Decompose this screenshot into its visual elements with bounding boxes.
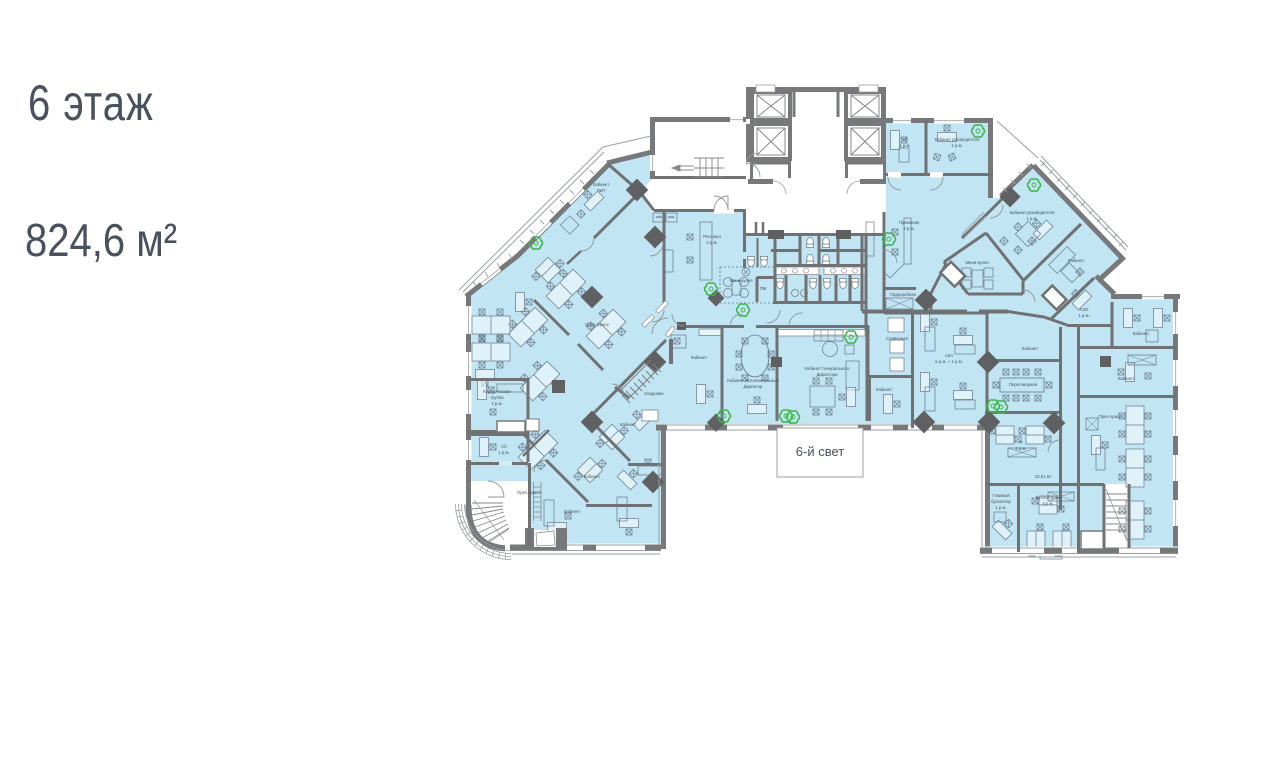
svg-text:2 р.м.: 2 р.м. [903, 226, 914, 231]
svg-text:Кабинет: Кабинет [1068, 258, 1084, 263]
svg-text:22.61 м²: 22.61 м² [1035, 474, 1052, 479]
svg-text:1 р.м.: 1 р.м. [498, 450, 509, 455]
svg-text:1 р.м.: 1 р.м. [1026, 216, 1037, 221]
svg-text:Серверная: Серверная [886, 336, 909, 341]
svg-text:Open space: Open space [1098, 414, 1122, 419]
svg-text:Главный: Главный [992, 493, 1010, 498]
svg-text:1 р.м.: 1 р.м. [1078, 313, 1089, 318]
svg-text:2 р.м.: 2 р.м. [706, 240, 717, 245]
svg-text:Кабинет: Кабинет [620, 422, 636, 427]
svg-text:Кабинет Исполнительный: Кабинет Исполнительный [727, 378, 779, 383]
svg-text:Кабинет: Кабинет [1022, 346, 1038, 351]
svg-text:1 р.м.: 1 р.м. [951, 143, 962, 148]
svg-text:Кабинет: Кабинет [593, 182, 609, 187]
svg-text:Бухгалтерия: Бухгалтерия [1036, 495, 1061, 500]
svg-text:шкф: шкф [668, 215, 675, 219]
svg-text:АЗО: АЗО [1080, 307, 1089, 312]
svg-text:бухгалтер: бухгалтер [991, 499, 1011, 504]
svg-text:6 р.м. + 1 р.м.: 6 р.м. + 1 р.м. [935, 359, 963, 364]
svg-text:Сб: Сб [902, 137, 908, 142]
svg-text:шкф: шкф [656, 215, 663, 219]
svg-text:Переговорная: Переговорная [1009, 382, 1038, 387]
svg-text:Директор: Директор [744, 384, 763, 389]
svg-text:4 р.м.: 4 р.м. [1015, 446, 1026, 451]
svg-text:1 р.м.: 1 р.м. [899, 143, 910, 148]
svg-text:Кабинет: Кабинет [691, 355, 707, 360]
svg-text:Open Space: Open Space [585, 322, 609, 327]
svg-text:Приемная: Приемная [899, 220, 920, 225]
svg-text:Кабинет: Кабинет [876, 387, 892, 392]
svg-text:Мини-кухня: Мини-кухня [965, 260, 989, 265]
svg-text:группа: группа [490, 395, 504, 400]
svg-text:Кабинет руководителя: Кабинет руководителя [1010, 210, 1055, 215]
svg-text:ПиП: ПиП [597, 188, 606, 193]
svg-text:Кабинет: Кабинет [1133, 331, 1149, 336]
svg-text:Сб: Сб [501, 444, 507, 449]
svg-text:Директора: Директора [816, 372, 838, 377]
svg-text:АЗА: АЗА [945, 353, 953, 358]
svg-text:Open Space: Open Space [517, 490, 541, 495]
svg-text:ІТ: ІТ [1019, 440, 1023, 445]
svg-text:Кабинет: Кабинет [584, 474, 600, 479]
svg-text:Кабинет: Кабинет [1118, 376, 1134, 381]
svg-text:Мини-кухня: Мини-кухня [729, 278, 753, 283]
svg-text:1 р.м.: 1 р.м. [995, 505, 1006, 510]
svg-text:4 р.м.: 4 р.м. [1042, 501, 1053, 506]
svg-text:2 р.м.: 2 р.м. [491, 401, 502, 406]
svg-text:ПМ: ПМ [760, 286, 767, 291]
svg-text:Кладовая: Кладовая [644, 391, 664, 396]
svg-text:Юридическая: Юридическая [483, 389, 511, 394]
svg-text:Гардеробная: Гардеробная [890, 292, 917, 297]
svg-text:6-й свет: 6-й свет [796, 444, 844, 459]
svg-text:Кабинет: Кабинет [564, 509, 580, 514]
svg-text:Ресепшн: Ресепшн [703, 234, 721, 239]
svg-text:Кабинет Генерального: Кабинет Генерального [805, 366, 850, 371]
svg-text:Кабинет руководителя: Кабинет руководителя [935, 137, 980, 142]
